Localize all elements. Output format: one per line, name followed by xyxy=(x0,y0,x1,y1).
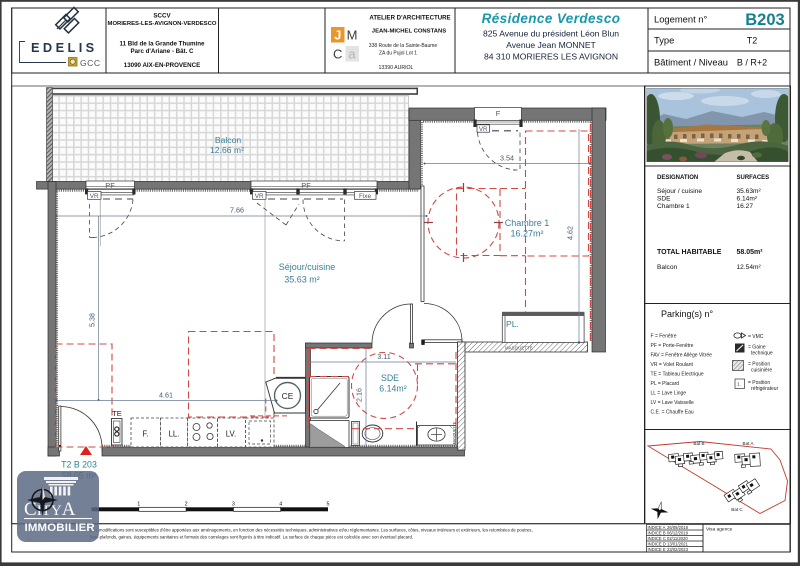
svg-text:Des modifications sont suscept: Des modifications sont susceptibles d'êt… xyxy=(90,528,533,533)
svg-text:IMMOBILIER: IMMOBILIER xyxy=(25,522,95,534)
svg-text:faux-plafonds, gaines, équipem: faux-plafonds, gaines, équipements sanit… xyxy=(90,535,413,540)
